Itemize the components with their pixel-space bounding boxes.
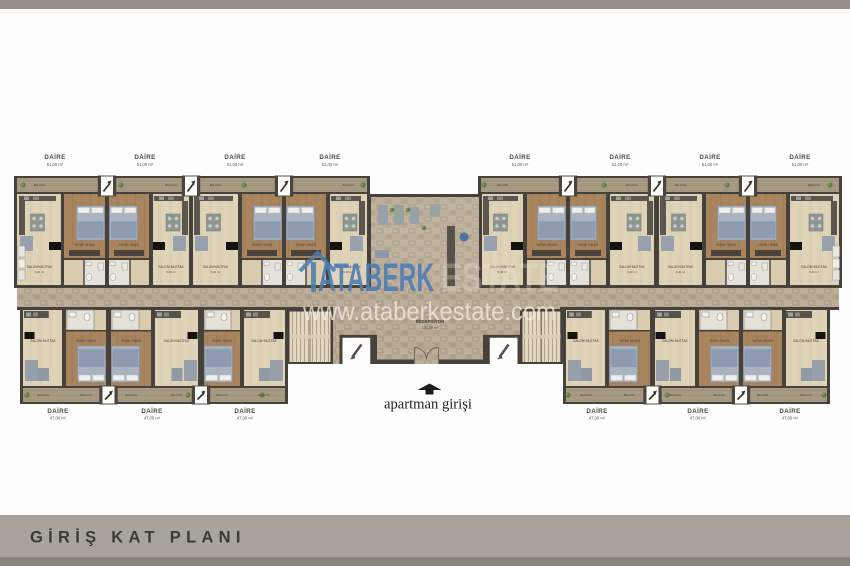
svg-text:YATAK ODASI: YATAK ODASI <box>619 339 640 343</box>
svg-text:9,40 m²: 9,40 m² <box>676 270 686 274</box>
svg-text:9,40 m²: 9,40 m² <box>166 270 176 274</box>
svg-text:47,00 m²: 47,00 m² <box>50 416 67 421</box>
svg-text:DAİRE: DAİRE <box>134 154 155 161</box>
svg-text:SALON+MUTFAK: SALON+MUTFAK <box>27 265 53 269</box>
svg-text:47,00 m²: 47,00 m² <box>144 416 161 421</box>
svg-text:DAİRE: DAİRE <box>234 408 255 415</box>
svg-text:SALON+MUTFAK: SALON+MUTFAK <box>251 339 277 343</box>
svg-text:YATAK ODASI: YATAK ODASI <box>716 243 737 247</box>
svg-text:51,00 m²: 51,00 m² <box>322 162 339 167</box>
svg-text:DAİRE: DAİRE <box>224 154 245 161</box>
svg-text:DAİRE: DAİRE <box>779 408 800 415</box>
svg-text:51,00 m²: 51,00 m² <box>702 162 719 167</box>
svg-text:9,40 m²: 9,40 m² <box>809 270 819 274</box>
svg-text:SALON+MUTFAK: SALON+MUTFAK <box>158 265 184 269</box>
svg-text:YATAK ODASI: YATAK ODASI <box>119 243 140 247</box>
svg-text:BALKON: BALKON <box>210 183 221 187</box>
svg-text:ATABERK: ATABERK <box>318 256 434 300</box>
svg-text:SALON+MUTFAK: SALON+MUTFAK <box>573 339 599 343</box>
svg-text:DAİRE: DAİRE <box>509 154 530 161</box>
svg-text:DAİRE: DAİRE <box>609 154 630 161</box>
svg-text:ESTATE: ESTATE <box>441 256 559 300</box>
svg-text:51,00 m²: 51,00 m² <box>47 162 64 167</box>
svg-text:9,40 m²: 9,40 m² <box>211 270 221 274</box>
svg-text:SALON+MUTFAK: SALON+MUTFAK <box>203 265 229 269</box>
svg-text:YATAK ODASI: YATAK ODASI <box>709 339 730 343</box>
svg-text:BALKON: BALKON <box>171 393 182 397</box>
svg-text:BALKON: BALKON <box>624 393 635 397</box>
svg-text:DAİRE: DAİRE <box>319 154 340 161</box>
svg-text:51,00 m²: 51,00 m² <box>792 162 809 167</box>
svg-text:47,00 m²: 47,00 m² <box>782 416 799 421</box>
svg-text:BALKON: BALKON <box>34 183 45 187</box>
svg-text:51,00 m²: 51,00 m² <box>512 162 529 167</box>
svg-text:47,00 m²: 47,00 m² <box>690 416 707 421</box>
svg-text:SALON+MUTFAK: SALON+MUTFAK <box>164 339 190 343</box>
svg-text:133,00 m²: 133,00 m² <box>422 326 439 330</box>
svg-text:BALKON: BALKON <box>258 393 269 397</box>
svg-text:47,00 m²: 47,00 m² <box>237 416 254 421</box>
svg-text:BALKON: BALKON <box>342 183 353 187</box>
svg-text:SALON+MUTFAK: SALON+MUTFAK <box>801 265 827 269</box>
svg-text:BALKON: BALKON <box>757 393 768 397</box>
svg-text:BALKON: BALKON <box>497 183 508 187</box>
svg-text:DAİRE: DAİRE <box>687 408 708 415</box>
svg-text:GİRİŞ KAT PLANI: GİRİŞ KAT PLANI <box>30 529 246 547</box>
svg-text:YATAK ODASI: YATAK ODASI <box>296 243 317 247</box>
svg-text:SALON+MUTFAK: SALON+MUTFAK <box>619 265 645 269</box>
svg-text:47,00 m²: 47,00 m² <box>589 416 606 421</box>
svg-text:BALKON: BALKON <box>216 393 227 397</box>
svg-text:51,00 m²: 51,00 m² <box>612 162 629 167</box>
svg-text:YATAK ODASI: YATAK ODASI <box>74 243 95 247</box>
svg-text:www.ataberkestate.com: www.ataberkestate.com <box>302 296 556 326</box>
svg-text:DAİRE: DAİRE <box>789 154 810 161</box>
svg-text:BALKON: BALKON <box>808 183 819 187</box>
svg-text:DAİRE: DAİRE <box>586 408 607 415</box>
svg-text:BALKON: BALKON <box>37 393 48 397</box>
svg-text:BALKON: BALKON <box>669 393 680 397</box>
svg-text:YATAK ODASI: YATAK ODASI <box>121 339 142 343</box>
svg-text:YATAK ODASI: YATAK ODASI <box>76 339 97 343</box>
svg-text:BALKON: BALKON <box>580 393 591 397</box>
svg-text:SALON+MUTFAK: SALON+MUTFAK <box>793 339 819 343</box>
svg-text:DAİRE: DAİRE <box>699 154 720 161</box>
svg-text:9,40 m²: 9,40 m² <box>35 270 45 274</box>
svg-text:YATAK ODASI: YATAK ODASI <box>752 339 773 343</box>
svg-text:SALON+MUTFAK: SALON+MUTFAK <box>30 339 56 343</box>
svg-text:YATAK ODASI: YATAK ODASI <box>212 339 233 343</box>
svg-text:DAİRE: DAİRE <box>44 154 65 161</box>
svg-text:BALKON: BALKON <box>165 183 176 187</box>
svg-text:9,40 m²: 9,40 m² <box>627 270 637 274</box>
svg-text:BALKON: BALKON <box>125 393 136 397</box>
svg-text:51,00 m²: 51,00 m² <box>227 162 244 167</box>
svg-text:BALKON: BALKON <box>80 393 91 397</box>
svg-text:BALKON: BALKON <box>800 393 811 397</box>
svg-text:YATAK ODASI: YATAK ODASI <box>758 243 779 247</box>
svg-text:DAİRE: DAİRE <box>141 408 162 415</box>
svg-text:BALKON: BALKON <box>675 183 686 187</box>
svg-text:51,00 m²: 51,00 m² <box>137 162 154 167</box>
svg-text:YATAK ODASI: YATAK ODASI <box>536 243 557 247</box>
svg-text:SALON+MUTFAK: SALON+MUTFAK <box>662 339 688 343</box>
svg-text:BALKON: BALKON <box>626 183 637 187</box>
svg-text:BALKON: BALKON <box>713 393 724 397</box>
svg-text:YATAK ODASI: YATAK ODASI <box>578 243 599 247</box>
svg-text:DAİRE: DAİRE <box>47 408 68 415</box>
svg-text:SALON+MUTFAK: SALON+MUTFAK <box>668 265 694 269</box>
svg-text:apartman girişi: apartman girişi <box>384 397 472 413</box>
svg-text:YATAK ODASI: YATAK ODASI <box>252 243 273 247</box>
